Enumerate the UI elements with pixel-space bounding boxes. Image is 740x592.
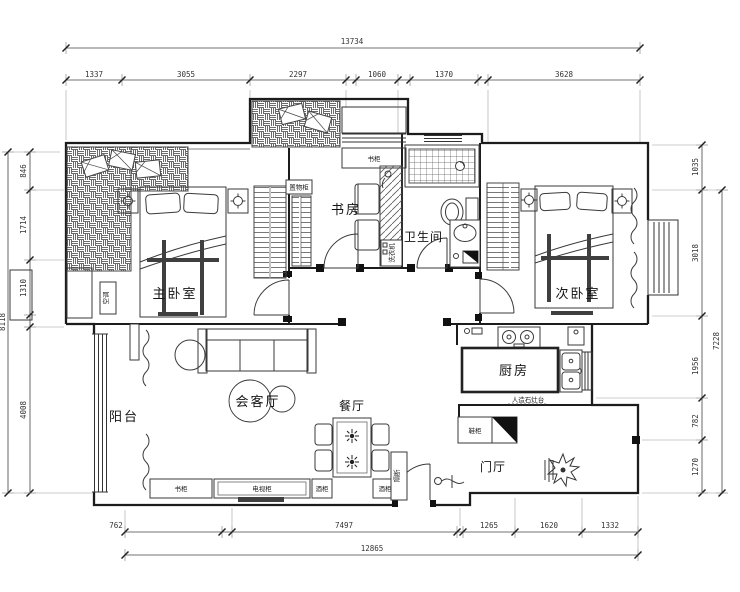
bedside-lamp-icon [231, 194, 246, 209]
dim-bottom-3: 1265 [480, 521, 498, 530]
wall-stub [130, 324, 139, 360]
side-cabinet-label: 书柜 [175, 484, 189, 493]
dim-bottom-5: 1332 [601, 521, 619, 530]
room-label-second-bedroom: 次卧室 [555, 286, 600, 302]
dim-bottom-1: 762 [109, 521, 123, 530]
chair [355, 220, 379, 250]
ac-unit [67, 268, 92, 318]
wine-cabinet-label: 酒柜 [316, 484, 330, 493]
partition-label: 隔断 [392, 469, 401, 483]
room-balcony: 阳台 [109, 330, 149, 490]
pillow [183, 193, 218, 214]
dim-right-2: 3018 [691, 243, 700, 262]
tv [238, 497, 284, 502]
ac-label: 空调 [101, 292, 110, 305]
chair [315, 424, 332, 445]
dim-left-3: 1310 [19, 278, 28, 297]
study-bay-window [342, 107, 406, 142]
chair [315, 450, 332, 471]
room-label-kitchen: 厨房 [499, 363, 529, 379]
room-label-foyer: 门厅 [480, 459, 506, 474]
dim-top-4: 1060 [368, 70, 387, 79]
dim-left-2: 1714 [19, 215, 28, 234]
dimensions-top: 13734 1337 3055 2297 1060 1370 3628 [63, 37, 644, 143]
bedside-lamp-icon [522, 193, 537, 208]
dim-top-3: 2297 [289, 70, 307, 79]
dim-right-5: 1270 [691, 457, 700, 476]
dim-top-5: 1370 [435, 70, 454, 79]
dim-top-6: 3628 [555, 70, 574, 79]
bedside-lamp-icon [615, 194, 630, 209]
dim-top-1: 1337 [85, 70, 103, 79]
balcony-window [92, 334, 108, 492]
room-label-master-bedroom: 主卧室 [152, 286, 197, 302]
master-bedroom-door [254, 280, 289, 315]
room-label-balcony: 阳台 [109, 410, 139, 425]
storage-cabinet-label: 置物柜 [289, 183, 309, 192]
dim-left-total: 8118 [0, 312, 7, 331]
kitchen-window [582, 352, 592, 390]
shoe-cabinet-label: 鞋柜 [469, 426, 483, 435]
dimensions-right: 1035 3018 1956 782 1270 7228 [596, 142, 728, 497]
study-door [324, 234, 358, 268]
bookshelf-label: 书柜 [368, 154, 382, 163]
room-bathroom: 卫生间 [404, 145, 480, 267]
bathtub [405, 145, 479, 187]
counter-label: 人造石灶台 [512, 395, 545, 404]
dim-top-2: 3055 [177, 70, 195, 79]
sink [560, 350, 582, 392]
pillow [576, 192, 607, 211]
curtain [631, 188, 637, 308]
bed-runner [158, 312, 198, 316]
tv-cabinet-label: 电视柜 [252, 484, 272, 493]
floor-plan-canvas: 13734 1337 3055 2297 1060 1370 3628 762 … [0, 0, 740, 592]
bathroom-window [424, 136, 462, 142]
dim-bottom-4: 1620 [540, 521, 559, 530]
floor-plan-svg: 13734 1337 3055 2297 1060 1370 3628 762 … [0, 0, 740, 592]
sofa [198, 329, 316, 373]
dim-left-4: 4008 [19, 400, 28, 419]
washbasin [450, 220, 480, 267]
room-foyer: 鞋柜 门厅 [435, 417, 580, 488]
dim-bottom-2: 7497 [335, 521, 353, 530]
room-label-dining: 餐厅 [339, 398, 365, 413]
plant-pot [545, 458, 553, 482]
dim-left-1: 846 [19, 164, 28, 178]
curtain [143, 330, 149, 490]
room-label-study: 书房 [331, 202, 361, 218]
stove [498, 327, 540, 348]
second-bedroom-door [480, 279, 514, 313]
room-label-living: 会客厅 [235, 394, 280, 410]
dim-right-3: 1956 [691, 356, 700, 375]
room-label-bathroom: 卫生间 [404, 230, 443, 244]
dim-top-total: 13734 [341, 37, 364, 46]
washer-label: 洗衣机 [387, 243, 396, 263]
side-table [175, 340, 205, 370]
room-kitchen: 厨房 人造石灶台 [462, 327, 584, 404]
table-plant-icon [345, 455, 359, 469]
chair [372, 424, 389, 445]
table-plant-icon [345, 429, 359, 443]
pillow [540, 192, 571, 211]
hood-icon [465, 329, 470, 334]
person-figure [435, 475, 465, 488]
wine-cabinet-label: 酒柜 [379, 484, 393, 493]
dim-right-1: 1035 [691, 158, 700, 176]
pillow [145, 193, 180, 214]
dim-right-total: 7228 [712, 331, 721, 350]
bed-runner [551, 311, 593, 315]
dim-right-4: 782 [691, 414, 700, 428]
study-wardrobe [292, 196, 311, 266]
room-master-bedroom: 空调 主卧室 [10, 147, 286, 320]
tv-wall-cabinets: 书柜 电视柜 酒柜 酒柜 [150, 479, 398, 502]
dim-bottom-total: 12865 [361, 544, 384, 553]
clothes-icon [135, 160, 161, 178]
bay-window-second-bedroom [648, 220, 678, 295]
chair [372, 450, 389, 471]
